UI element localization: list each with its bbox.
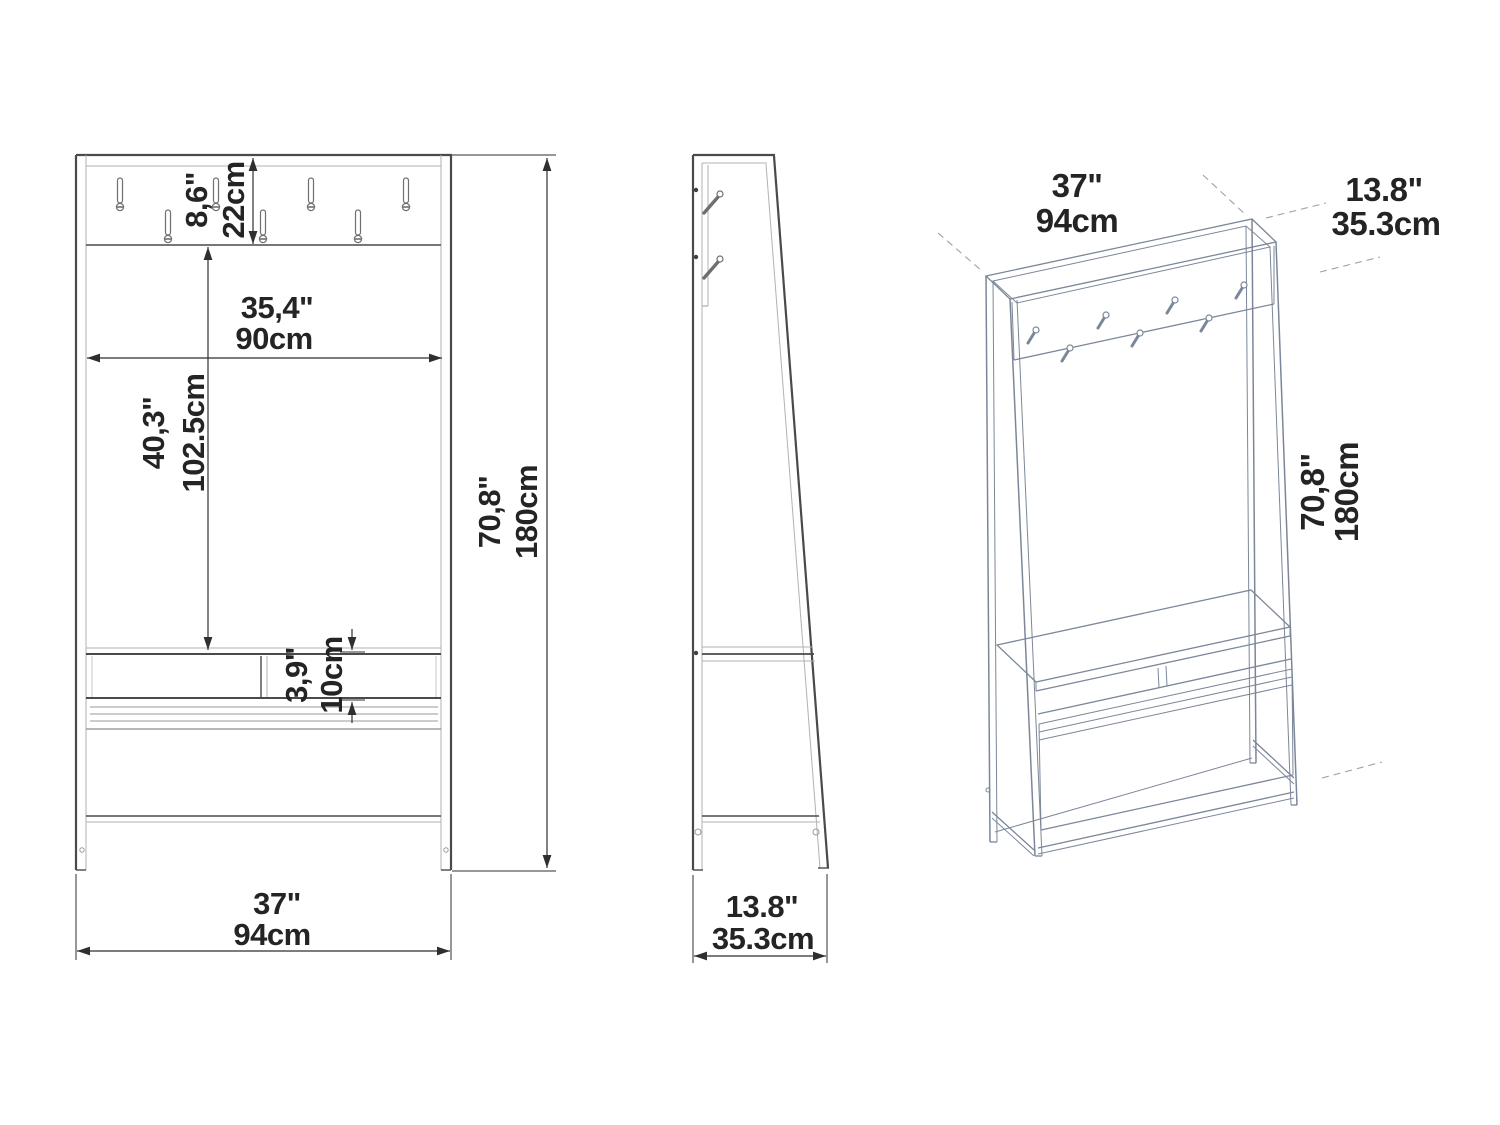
dim-hook-panel-height: 8,6" 22cm: [179, 158, 253, 244]
dim-iso-height: 70,8" 180cm: [1294, 442, 1365, 542]
front-hooks: [116, 178, 410, 243]
hook-icon: [354, 210, 362, 243]
dim-iso-depth: 13.8" 35.3cm: [1332, 171, 1441, 242]
hook-icon: [307, 178, 315, 211]
hook-icon: [259, 210, 267, 243]
front-frame: [76, 155, 452, 870]
dim-total-height: 70,8" 180cm: [452, 155, 556, 871]
dim-label: 13.8": [1345, 171, 1422, 208]
front-dimensions: 8,6" 22cm 35,4" 90cm 40,3" 102.5cm: [76, 155, 556, 960]
hook-icon: [1098, 312, 1109, 328]
iso-hooks: [1028, 282, 1247, 361]
dim-label: 35.3cm: [1332, 205, 1441, 242]
iso-dimensions: 37" 94cm 13.8" 35.3cm 70,8" 180cm: [1036, 167, 1441, 542]
dim-label: 10cm: [314, 636, 349, 713]
hook-icon: [704, 191, 723, 213]
drawing-svg: 8,6" 22cm 35,4" 90cm 40,3" 102.5cm: [0, 0, 1500, 1125]
dim-label: 35,4": [241, 290, 314, 325]
side-dimensions: 13.8" 35.3cm: [693, 874, 827, 963]
dim-panel-to-bench: 40,3" 102.5cm: [136, 247, 211, 650]
dim-total-depth: 13.8" 35.3cm: [693, 874, 827, 963]
dim-label: 37": [1052, 167, 1103, 204]
dim-label: 35.3cm: [712, 921, 814, 956]
hook-icon: [1201, 315, 1212, 331]
dim-label: 40,3": [136, 397, 171, 470]
hook-icon: [1028, 327, 1039, 343]
dim-label: 8,6": [179, 172, 214, 228]
dim-label: 94cm: [233, 917, 310, 952]
hook-icon: [164, 210, 172, 243]
dim-bench-gap: 3,9" 10cm: [279, 629, 365, 723]
side-hooks: [704, 191, 723, 278]
hook-icon: [1062, 345, 1073, 361]
hook-icon: [402, 178, 410, 211]
hook-icon: [1236, 282, 1247, 298]
dim-label: 102.5cm: [176, 374, 211, 493]
dim-label: 90cm: [235, 321, 312, 356]
hook-icon: [704, 256, 723, 278]
dim-label: 22cm: [216, 161, 251, 238]
hook-icon: [1132, 330, 1143, 346]
side-frame: [693, 155, 829, 870]
hook-icon: [116, 178, 124, 211]
dim-label: 70,8": [1294, 453, 1331, 530]
dim-inner-width: 35,4" 90cm: [87, 290, 442, 358]
dim-label: 180cm: [509, 465, 544, 559]
iso-structure: [986, 219, 1297, 856]
dim-label: 180cm: [1328, 442, 1365, 542]
front-view: 8,6" 22cm 35,4" 90cm 40,3" 102.5cm: [76, 155, 556, 960]
dim-iso-width: 37" 94cm: [1036, 167, 1118, 239]
dim-label: 3,9": [279, 647, 314, 703]
hook-icon: [1167, 297, 1178, 313]
side-view: 13.8" 35.3cm: [693, 155, 829, 963]
technical-drawing-page: 8,6" 22cm 35,4" 90cm 40,3" 102.5cm: [0, 0, 1500, 1125]
dim-label: 94cm: [1036, 202, 1118, 239]
dim-label: 37": [253, 886, 301, 921]
dim-label: 13.8": [726, 889, 799, 924]
isometric-view: 37" 94cm 13.8" 35.3cm 70,8" 180cm: [938, 167, 1440, 856]
dim-total-width: 37" 94cm: [76, 874, 451, 960]
dim-label: 70,8": [472, 476, 507, 549]
